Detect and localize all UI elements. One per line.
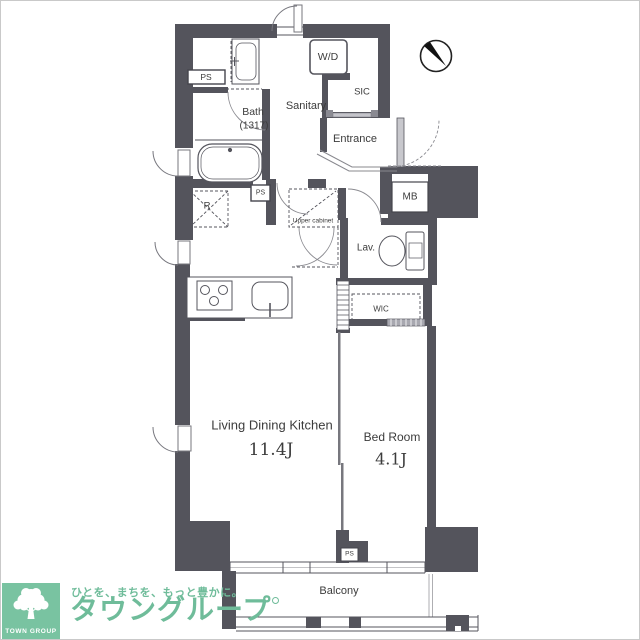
window-arc-1: [153, 151, 178, 176]
bathtub-faucet: [228, 148, 231, 151]
mb-block: [428, 166, 478, 218]
sic-door-pivot-2: [371, 110, 378, 117]
stove-burner-1: [201, 286, 210, 295]
town-group-logo: TOWN GROUP ひとを、まちを、もっと豊かに。 タウングループ: [0, 580, 300, 640]
floorplan-drawing: [0, 0, 640, 640]
stove-burner-2: [219, 286, 228, 295]
bedroom-size-label: 4.1J: [375, 450, 407, 469]
bedroom-right-wall: [427, 326, 436, 527]
stove-burner-3: [210, 297, 219, 306]
window-leaf-3: [178, 426, 191, 451]
sanitary-door-arc: [277, 183, 308, 214]
bath-size-label: (1317): [240, 121, 269, 132]
toilet-lid: [409, 243, 422, 258]
town-group-logo-square: TOWN GROUP: [2, 583, 60, 640]
wall-left-1: [175, 24, 193, 148]
railing-post-2: [349, 617, 361, 628]
town-group-text: TOWN GROUP: [2, 628, 60, 635]
ps-bottom-label: PS: [345, 551, 354, 558]
brand-name: タウングループ: [70, 596, 279, 624]
bath-top-wall: [193, 87, 228, 93]
entrance-left-wall: [320, 118, 327, 152]
wall-top-right: [303, 24, 390, 38]
front-door-leaf: [397, 118, 404, 167]
corner-block-right: [425, 527, 478, 572]
wd-label: W/D: [318, 51, 338, 63]
sic-door-leaf: [333, 113, 371, 117]
window-arc-3: [153, 427, 178, 452]
sic-label: SIC: [354, 87, 370, 98]
bedroom-label: Bed Room: [364, 430, 421, 444]
north-compass-icon: [421, 41, 452, 72]
toilet-icon: [379, 236, 405, 266]
corridor-door-arc-1: [296, 228, 334, 266]
registered-mark: [272, 597, 279, 604]
lav-label: Lav.: [357, 243, 375, 254]
window-leaf-2: [178, 241, 190, 264]
sanitary-label: Sanitary: [286, 100, 326, 112]
wic-label: WIC: [373, 305, 389, 314]
entrance-mb-wall: [380, 167, 392, 214]
tree-icon: [9, 587, 53, 623]
entrance-label: Entrance: [333, 133, 377, 145]
brand-name-text: タウングループ: [70, 594, 271, 625]
sic-door-pivot-1: [326, 110, 333, 117]
bedroom-closet-door: [337, 281, 349, 330]
lav-bottom-wall: [336, 278, 437, 285]
ldk-label: Living Dining Kitchen: [211, 418, 332, 433]
lav-door-arc: [348, 189, 381, 222]
corridor-east-wall-2: [338, 188, 346, 220]
ps-mid-label: PS: [256, 190, 265, 197]
railing-post-1: [306, 617, 321, 628]
bath-label: Bath: [242, 106, 264, 118]
corner-block-left: [175, 521, 230, 571]
balcony-divider: [429, 574, 433, 617]
lav-right-wall: [428, 212, 437, 285]
room-partition: [338, 332, 344, 530]
floorplan-page: PS Bath (1317) Sanitary W/D SIC Entrance…: [0, 0, 640, 640]
mb-label: MB: [403, 192, 418, 203]
ldk-size-label: 11.4J: [249, 440, 294, 460]
corridor-top-wall-2: [308, 179, 326, 188]
upper-cabinet-label: Upper cabinet: [293, 218, 333, 225]
ps-top-label: PS: [200, 72, 211, 82]
railing-post-notch: [455, 626, 461, 631]
bath-right-wall: [262, 89, 270, 180]
balcony-label: Balcony: [319, 585, 358, 597]
top-door-leaf: [294, 5, 302, 32]
wic-bottom-wall: [345, 319, 387, 326]
window-leaf-1: [178, 150, 190, 176]
window-arc-2: [155, 242, 178, 265]
mb-bottom-wall: [388, 212, 428, 218]
wall-right-top: [378, 24, 390, 118]
refrigerator-label: R: [204, 201, 211, 212]
wall-left-4: [175, 451, 190, 521]
